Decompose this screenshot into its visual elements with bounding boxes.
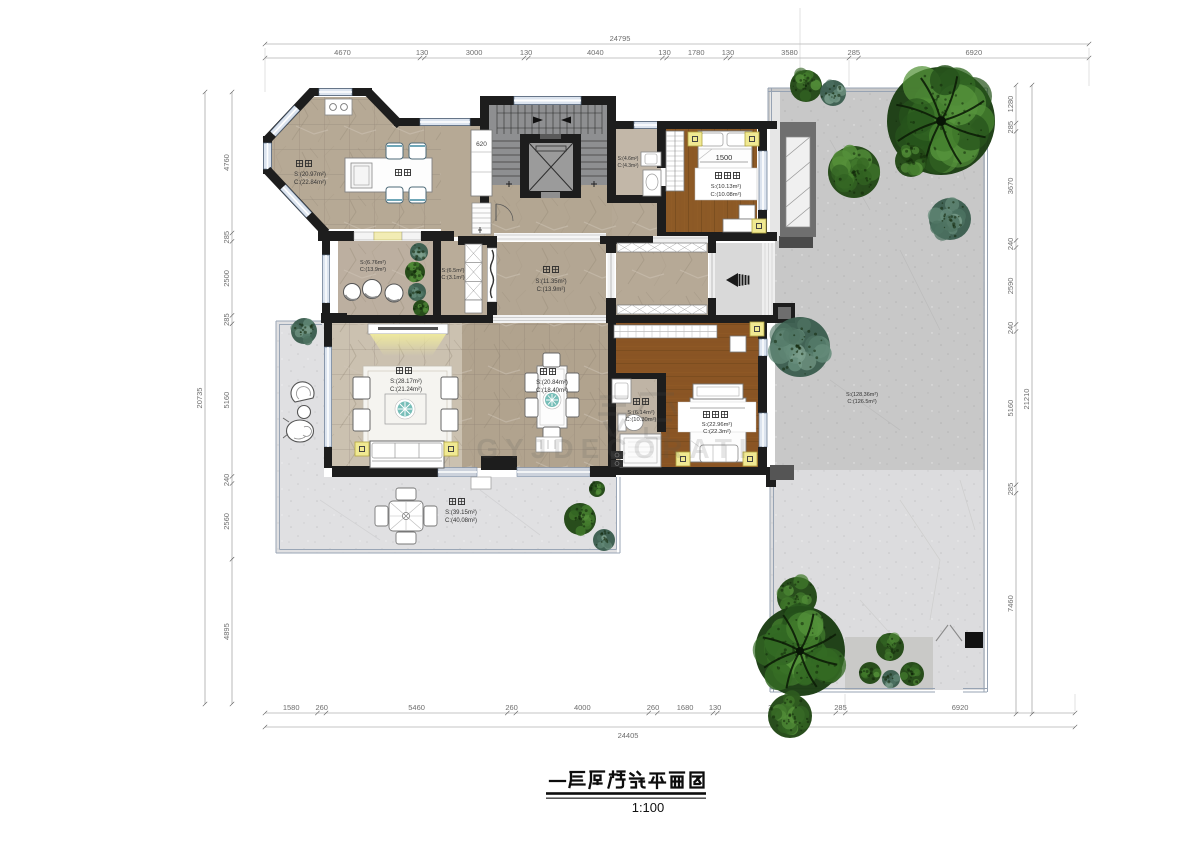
svg-text:4895: 4895 (222, 623, 231, 640)
svg-text:S:(128.36m²): S:(128.36m²) (846, 392, 878, 398)
svg-text:1500: 1500 (716, 153, 733, 162)
svg-text:240: 240 (222, 474, 231, 487)
svg-text:C:(40.08m²): C:(40.08m²) (445, 518, 477, 524)
svg-text:24795: 24795 (610, 34, 631, 43)
svg-text:S:(28.17m²): S:(28.17m²) (390, 379, 422, 385)
svg-text:21210: 21210 (1022, 389, 1031, 410)
svg-text:2500: 2500 (222, 270, 231, 287)
svg-text:6920: 6920 (952, 703, 969, 712)
svg-text:4670: 4670 (334, 48, 351, 57)
svg-text:S:(6.76m²): S:(6.76m²) (360, 260, 386, 266)
svg-text:130: 130 (520, 48, 533, 57)
svg-text:C:(126.5m²): C:(126.5m²) (847, 399, 877, 405)
svg-text:130: 130 (709, 703, 722, 712)
svg-text:S:(20.84m²): S:(20.84m²) (536, 380, 568, 386)
svg-text:260: 260 (315, 703, 328, 712)
svg-text:285: 285 (834, 703, 847, 712)
svg-text:1:100: 1:100 (632, 800, 665, 815)
svg-text:3580: 3580 (781, 48, 798, 57)
svg-text:4040: 4040 (587, 48, 604, 57)
svg-text:620: 620 (476, 141, 487, 148)
svg-text:260: 260 (647, 703, 660, 712)
svg-text:C:(3.1m²): C:(3.1m²) (441, 275, 464, 281)
svg-text:S:(4.6m²): S:(4.6m²) (618, 156, 639, 162)
svg-text:20735: 20735 (195, 388, 204, 409)
svg-text:260: 260 (505, 703, 518, 712)
svg-text:C:(4.3m²): C:(4.3m²) (617, 163, 638, 169)
svg-text:2590: 2590 (1006, 278, 1015, 295)
svg-text:1280: 1280 (1006, 96, 1015, 113)
svg-text:130: 130 (658, 48, 671, 57)
svg-text:24405: 24405 (618, 731, 639, 740)
svg-text:5160: 5160 (222, 392, 231, 409)
svg-text:240: 240 (1006, 322, 1015, 335)
svg-text:1680: 1680 (677, 703, 694, 712)
svg-text:2560: 2560 (222, 513, 231, 530)
svg-text:C:(13.9m²): C:(13.9m²) (537, 287, 566, 293)
svg-text:S:(10.13m²): S:(10.13m²) (711, 184, 742, 190)
svg-text:5460: 5460 (408, 703, 425, 712)
svg-text:1780: 1780 (688, 48, 705, 57)
svg-text:C:(18.40m²): C:(18.40m²) (536, 388, 568, 394)
svg-text:6920: 6920 (965, 48, 982, 57)
svg-text:4760: 4760 (222, 154, 231, 171)
svg-text:130: 130 (416, 48, 429, 57)
svg-text:240: 240 (1006, 238, 1015, 251)
svg-text:S:(11.35m²): S:(11.35m²) (535, 279, 566, 285)
svg-text:S:(6.5m²): S:(6.5m²) (442, 268, 465, 274)
svg-text:285: 285 (848, 48, 861, 57)
svg-text:4000: 4000 (574, 703, 591, 712)
svg-text:285: 285 (222, 313, 231, 326)
svg-text:1580: 1580 (283, 703, 300, 712)
svg-text:130: 130 (722, 48, 735, 57)
svg-text:C:(13.9m²): C:(13.9m²) (360, 267, 386, 273)
svg-text:S:(20.97m²): S:(20.97m²) (294, 172, 326, 178)
svg-text:3000: 3000 (466, 48, 483, 57)
svg-text:285: 285 (1006, 121, 1015, 134)
svg-text:GYJDECORATI: GYJDECORATI (476, 433, 753, 464)
svg-text:S:(22.96m²): S:(22.96m²) (702, 422, 733, 428)
svg-text:7460: 7460 (1006, 595, 1015, 612)
svg-text:285: 285 (1006, 483, 1015, 496)
svg-text:C:(10.08m²): C:(10.08m²) (711, 192, 742, 198)
svg-text:5160: 5160 (1006, 400, 1015, 417)
svg-text:S:(39.15m²): S:(39.15m²) (445, 510, 477, 516)
svg-text:3670: 3670 (1006, 178, 1015, 195)
svg-text:C:(22.84m²): C:(22.84m²) (294, 180, 326, 186)
svg-text:C:(21.24m²): C:(21.24m²) (390, 387, 422, 393)
svg-text:285: 285 (222, 231, 231, 244)
